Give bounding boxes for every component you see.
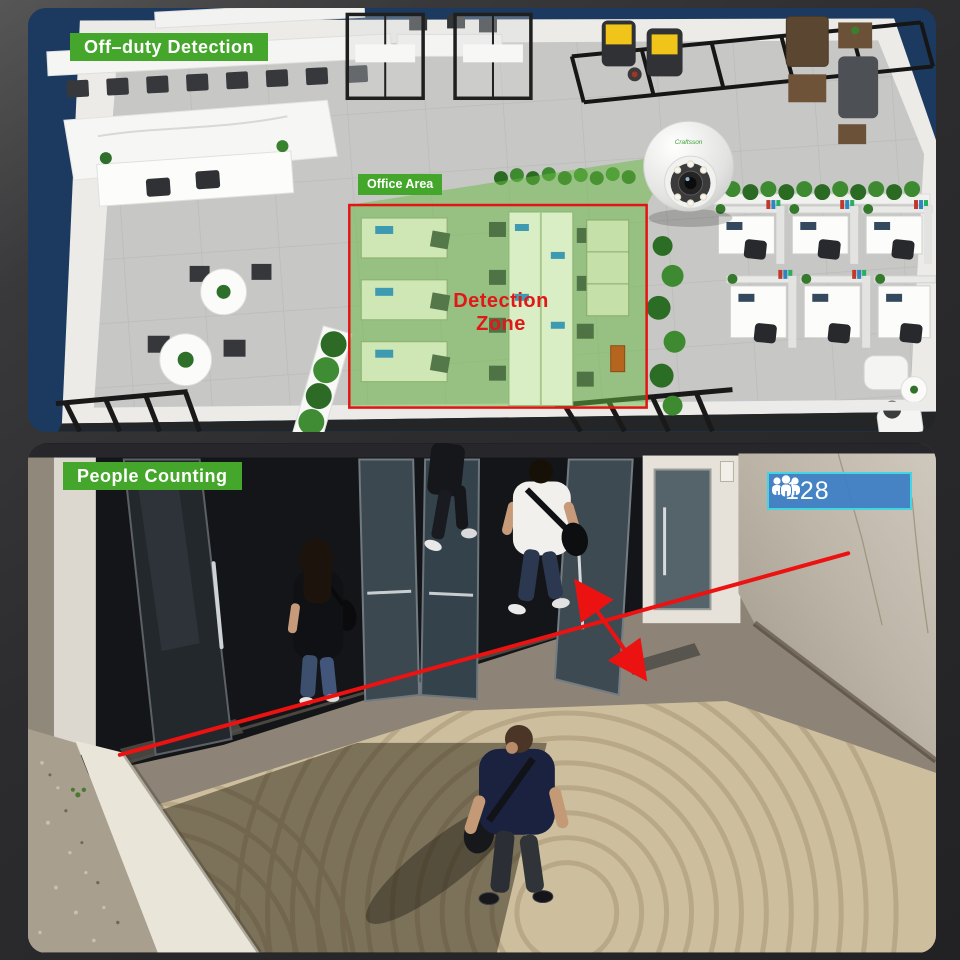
office-area-badge: Office Area bbox=[358, 174, 442, 195]
closed-glass-door bbox=[655, 470, 711, 610]
off-duty-detection-panel: Craftsson Off–duty Detection Office Area… bbox=[28, 8, 936, 432]
center-door-a bbox=[359, 460, 419, 701]
people-group-icon bbox=[769, 474, 803, 500]
left-concrete-sliver bbox=[28, 456, 54, 745]
office-floorplan-illustration: Craftsson bbox=[28, 8, 936, 432]
off-duty-detection-badge: Off–duty Detection bbox=[70, 33, 268, 61]
switch-panel bbox=[720, 462, 733, 482]
man-head bbox=[529, 460, 553, 484]
camera-feature-marketing-image: Craftsson Off–duty Detection Office Area… bbox=[0, 0, 960, 960]
people-counting-panel: People Counting 128 bbox=[28, 443, 936, 953]
camera-brand-logo: Craftsson bbox=[675, 139, 703, 146]
people-counter-badge: 128 bbox=[767, 472, 912, 510]
push-bar-b bbox=[429, 593, 473, 595]
push-bar bbox=[367, 591, 411, 593]
people-counting-badge: People Counting bbox=[63, 462, 242, 490]
detection-zone-label: Detection Zone bbox=[426, 290, 576, 336]
left-white-jamb bbox=[54, 456, 96, 755]
entrance-scene-illustration bbox=[28, 443, 936, 953]
